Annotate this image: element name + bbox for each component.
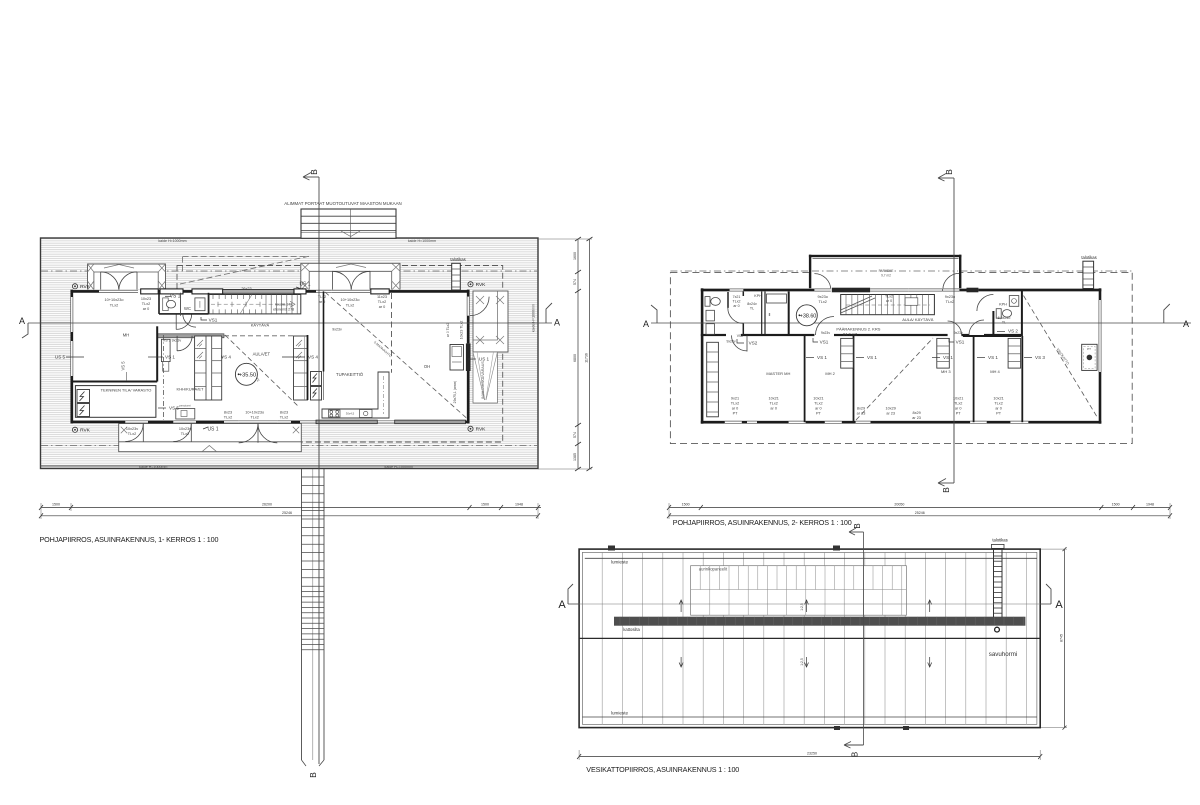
svg-text:VS 5: VS 5 xyxy=(121,361,126,371)
svg-text:kaide H=1000mm: kaide H=1000mm xyxy=(158,239,186,243)
svg-text:TLx2: TLx2 xyxy=(128,432,136,436)
svg-text:26200: 26200 xyxy=(262,503,272,507)
svg-text:25246: 25246 xyxy=(915,511,925,515)
svg-text:ar 0: ar 0 xyxy=(379,305,386,309)
svg-text:TLx2: TLx2 xyxy=(110,304,118,308)
svg-text:kaide H=1000mm: kaide H=1000mm xyxy=(385,465,413,469)
svg-text:ar 0: ar 0 xyxy=(143,307,150,311)
svg-text:TLx2: TLx2 xyxy=(994,402,1002,406)
svg-text:9x23v: 9x23v xyxy=(954,331,963,335)
svg-text:VS1: VS1 xyxy=(820,340,829,345)
svg-text:84,7 m2: 84,7 m2 xyxy=(843,332,858,337)
svg-text:US 1: US 1 xyxy=(207,427,218,433)
svg-text:ar 0: ar 0 xyxy=(955,407,962,411)
svg-text:10x21: 10x21 xyxy=(953,397,963,401)
svg-text:TLx2: TLx2 xyxy=(224,416,232,420)
svg-text:8x29: 8x29 xyxy=(857,407,865,411)
svg-text:ar 23: ar 23 xyxy=(857,412,866,416)
svg-text:10+10x23o: 10+10x23o xyxy=(341,298,360,302)
svg-text:WC: WC xyxy=(184,306,191,311)
svg-text:26x23: 26x23 xyxy=(241,287,251,291)
svg-text:VS 5: VS 5 xyxy=(169,406,179,411)
svg-text:ar 0: ar 0 xyxy=(886,299,892,303)
svg-text:ar 0: ar 0 xyxy=(732,407,739,411)
svg-text:MH 2: MH 2 xyxy=(825,371,835,376)
svg-text:10x23v: 10x23v xyxy=(179,427,191,431)
svg-text:OH: OH xyxy=(424,364,430,369)
svg-text:1948: 1948 xyxy=(1146,503,1154,507)
svg-text:Ⅱ: Ⅱ xyxy=(769,312,771,317)
svg-text:TLx2: TLx2 xyxy=(814,402,822,406)
svg-text:RVK: RVK xyxy=(476,282,487,288)
svg-text:pesutorni: pesutorni xyxy=(179,404,191,408)
svg-text:kattosilta: kattosilta xyxy=(623,627,640,632)
svg-text:6,5x24o: 6,5x24o xyxy=(998,316,1011,320)
svg-text:ar 0: ar 0 xyxy=(995,407,1002,411)
svg-text:ar 0: ar 0 xyxy=(733,304,739,308)
svg-text:VS2: VS2 xyxy=(749,341,758,346)
svg-text:KPH: KPH xyxy=(754,294,762,298)
svg-text:ar 23: ar 23 xyxy=(912,416,921,420)
svg-text:VS 1: VS 1 xyxy=(943,355,953,360)
svg-text:TLx2: TLx2 xyxy=(885,295,893,299)
svg-text:10x21: 10x21 xyxy=(769,397,779,401)
svg-text:9x23v: 9x23v xyxy=(332,328,342,332)
svg-text:POHJAPIIRROS, ASUINRAKENNUS, 1: POHJAPIIRROS, ASUINRAKENNUS, 1- KERROS 1… xyxy=(40,535,219,544)
svg-text:TLx2: TLx2 xyxy=(946,300,954,304)
svg-text:MH: MH xyxy=(123,333,130,338)
svg-text:VS 1: VS 1 xyxy=(817,355,827,360)
svg-text:9x23v: 9x23v xyxy=(821,331,830,335)
svg-text:VS 2: VS 2 xyxy=(1008,329,1018,334)
svg-text:TL: TL xyxy=(750,307,754,311)
svg-text:savuhormi: savuhormi xyxy=(989,651,1018,658)
svg-text:8745: 8745 xyxy=(1060,634,1064,642)
svg-text:TEKNINEN TILA/ VARASTO: TEKNINEN TILA/ VARASTO xyxy=(101,388,152,393)
svg-text:+38.60: +38.60 xyxy=(800,313,817,319)
svg-text:talotikas: talotikas xyxy=(992,538,1007,543)
svg-text:1:2,5: 1:2,5 xyxy=(800,658,804,666)
svg-text:TLx2: TLx2 xyxy=(769,402,777,406)
svg-text:AULA/ KÄYTÄVÄ: AULA/ KÄYTÄVÄ xyxy=(902,317,933,322)
svg-text:B: B xyxy=(944,169,954,175)
svg-text:MH 3: MH 3 xyxy=(941,369,951,374)
svg-text:1500: 1500 xyxy=(682,503,690,507)
svg-text:TLx2: TLx2 xyxy=(818,300,826,304)
svg-text:PARVEKE: PARVEKE xyxy=(879,269,894,273)
svg-text:AULA/ET: AULA/ET xyxy=(253,352,271,357)
svg-text:574: 574 xyxy=(573,279,577,285)
svg-text:B: B xyxy=(309,169,319,175)
svg-text:9x23o: 9x23o xyxy=(945,295,955,299)
svg-text:9,7 m2: 9,7 m2 xyxy=(881,274,891,278)
svg-text:8x24v: 8x24v xyxy=(747,302,757,306)
svg-text:VS 1 9x23v: VS 1 9x23v xyxy=(163,339,182,343)
svg-text:25246: 25246 xyxy=(282,511,292,515)
svg-text:A: A xyxy=(643,319,649,329)
svg-text:talotikas: talotikas xyxy=(1081,255,1096,260)
svg-text:PT: PT xyxy=(816,412,822,416)
svg-text:10x23: 10x23 xyxy=(141,297,151,301)
svg-text:A: A xyxy=(558,599,566,611)
svg-text:RVK: RVK xyxy=(476,427,487,433)
svg-text:nousia 172: nousia 172 xyxy=(275,303,293,307)
svg-text:ar 0: ar 0 xyxy=(319,300,326,304)
svg-text:ar 23: ar 23 xyxy=(886,412,895,416)
svg-text:lumieste: lumieste xyxy=(611,711,629,716)
svg-text:POHJAPIIRROS, ASUINRAKENNUS, 2: POHJAPIIRROS, ASUINRAKENNUS, 2- KERROS 1… xyxy=(673,518,852,527)
svg-text:US 5: US 5 xyxy=(55,355,66,360)
svg-text:US 1: US 1 xyxy=(479,357,490,362)
svg-text:etenemä 278: etenemä 278 xyxy=(273,307,294,311)
svg-text:kaide H=1000mm: kaide H=1000mm xyxy=(139,465,167,469)
svg-text:aurinkopaneelit: aurinkopaneelit xyxy=(699,567,728,572)
svg-text:11x23: 11x23 xyxy=(377,295,387,299)
svg-text:TLx2: TLx2 xyxy=(731,402,739,406)
svg-text:10+10x23o: 10+10x23o xyxy=(105,298,124,302)
svg-text:TL: TL xyxy=(1002,321,1006,325)
svg-text:KÄYTÄVÄ: KÄYTÄVÄ xyxy=(251,322,270,327)
svg-text:A: A xyxy=(1055,599,1063,611)
svg-text:RVK: RVK xyxy=(80,428,91,434)
svg-text:1500: 1500 xyxy=(481,503,489,507)
svg-text:VS1: VS1 xyxy=(956,340,965,345)
svg-text:INVA-LUISKA/VARAUS: INVA-LUISKA/VARAUS xyxy=(481,361,485,399)
svg-text:ar 0: ar 0 xyxy=(815,407,822,411)
svg-text:+35.50: +35.50 xyxy=(239,372,256,378)
svg-text:10x21: 10x21 xyxy=(993,397,1003,401)
svg-text:9x23v: 9x23v xyxy=(726,340,735,344)
svg-text:A: A xyxy=(19,316,25,326)
svg-text:TLx2: TLx2 xyxy=(378,300,386,304)
svg-text:1500: 1500 xyxy=(52,503,60,507)
svg-text:9x21: 9x21 xyxy=(731,397,739,401)
svg-text:1600: 1600 xyxy=(573,252,577,260)
svg-text:7x21: 7x21 xyxy=(733,295,741,299)
svg-text:B: B xyxy=(853,523,862,528)
svg-text:20050: 20050 xyxy=(894,503,904,507)
svg-text:TLx2: TLx2 xyxy=(280,416,288,420)
svg-text:23250: 23250 xyxy=(807,752,817,756)
svg-text:ar 0 TLx2: ar 0 TLx2 xyxy=(446,323,450,337)
svg-text:VS 3: VS 3 xyxy=(1035,355,1045,360)
svg-text:TLx2: TLx2 xyxy=(250,416,258,420)
svg-text:VS 4: VS 4 xyxy=(308,355,318,360)
svg-text:8x29: 8x29 xyxy=(912,411,920,415)
svg-text:VS 1: VS 1 xyxy=(170,294,181,300)
svg-text:TUPAKEITTIÖ: TUPAKEITTIÖ xyxy=(336,372,364,377)
svg-text:talotikas: talotikas xyxy=(450,257,465,262)
svg-text:KPH: KPH xyxy=(999,303,1007,307)
svg-text:VS 1: VS 1 xyxy=(165,355,175,360)
svg-text:lumieste: lumieste xyxy=(611,559,629,564)
svg-text:RVK: RVK xyxy=(80,284,91,290)
svg-text:1500: 1500 xyxy=(1112,503,1120,507)
svg-text:PT: PT xyxy=(1087,347,1091,351)
svg-text:MASTER MH: MASTER MH xyxy=(766,371,790,376)
svg-text:MH 4: MH 4 xyxy=(990,369,1000,374)
svg-text:8x23: 8x23 xyxy=(224,411,232,415)
svg-text:574: 574 xyxy=(573,432,577,438)
svg-text:10+10x23o: 10+10x23o xyxy=(245,411,264,415)
svg-text:VS2: VS2 xyxy=(737,334,744,338)
svg-text:KHH/KURA/ET: KHH/KURA/ET xyxy=(177,387,204,392)
svg-text:A: A xyxy=(554,318,560,328)
svg-text:1948: 1948 xyxy=(515,503,523,507)
svg-text:TLx2: TLx2 xyxy=(181,432,189,436)
svg-text:B: B xyxy=(308,772,318,778)
svg-text:8x23: 8x23 xyxy=(280,411,288,415)
svg-text:TLx2: TLx2 xyxy=(954,402,962,406)
svg-text:6800: 6800 xyxy=(573,354,577,362)
svg-text:A: A xyxy=(1183,319,1189,329)
svg-text:TLx2: TLx2 xyxy=(346,304,354,308)
svg-text:9x23o: 9x23o xyxy=(818,295,828,299)
svg-text:PT: PT xyxy=(733,412,739,416)
svg-text:kaide H=1000mm: kaide H=1000mm xyxy=(408,239,436,243)
svg-text:kaide H=1000mm: kaide H=1000mm xyxy=(532,304,536,332)
svg-text:10x21: 10x21 xyxy=(813,397,823,401)
svg-text:10x29: 10x29 xyxy=(886,407,896,411)
svg-text:US 1: US 1 xyxy=(299,282,310,288)
svg-text:TLx2: TLx2 xyxy=(142,302,150,306)
svg-text:VESIKATTOPIIRROS, ASUINRAKENNU: VESIKATTOPIIRROS, ASUINRAKENNUS 1 : 100 xyxy=(586,765,739,774)
svg-text:PT: PT xyxy=(956,412,962,416)
svg-text:10x23v: 10x23v xyxy=(126,427,138,431)
svg-text:11736: 11736 xyxy=(585,353,589,363)
svg-text:ALIMMAT PORTAAT MUOTOUTUVAT MA: ALIMMAT PORTAAT MUOTOUTUVAT MAASTON MUKA… xyxy=(284,201,401,206)
svg-text:PT: PT xyxy=(996,412,1002,416)
svg-text:1385: 1385 xyxy=(573,453,577,461)
svg-text:10x23 TLx2: 10x23 TLx2 xyxy=(460,321,464,340)
svg-text:B: B xyxy=(941,487,951,493)
svg-text:VS 1: VS 1 xyxy=(988,355,998,360)
svg-text:VS1: VS1 xyxy=(209,318,218,323)
svg-text:29x75,1 (xmm): 29x75,1 (xmm) xyxy=(453,381,457,404)
svg-text:30x4,5: 30x4,5 xyxy=(346,412,355,416)
svg-text:TLx2: TLx2 xyxy=(733,300,741,304)
svg-text:VS 1: VS 1 xyxy=(867,355,877,360)
svg-text:ar 0: ar 0 xyxy=(770,407,777,411)
